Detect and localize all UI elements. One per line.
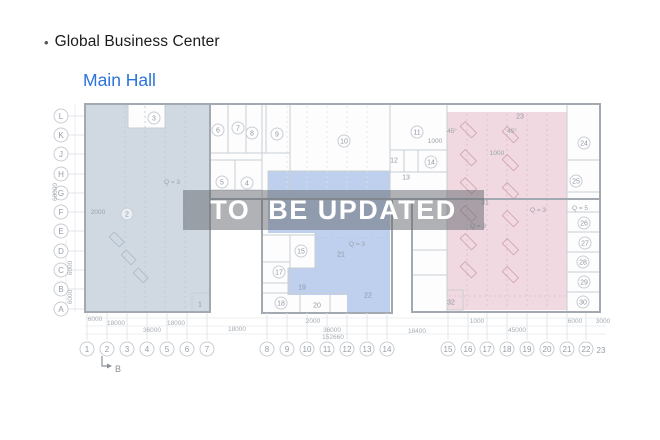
svg-text:18: 18 [503, 345, 512, 354]
svg-text:18400: 18400 [408, 328, 426, 335]
svg-text:E: E [58, 227, 63, 236]
svg-text:2: 2 [125, 211, 129, 218]
svg-text:2000: 2000 [91, 209, 106, 216]
svg-text:28: 28 [579, 259, 587, 266]
svg-text:C: C [58, 266, 64, 275]
svg-text:3: 3 [125, 345, 130, 354]
svg-text:2000: 2000 [306, 318, 321, 325]
row-axis-labels: LKJHGFEDCBA [54, 109, 84, 316]
svg-text:12: 12 [343, 345, 352, 354]
svg-text:2: 2 [105, 345, 110, 354]
svg-text:45000: 45000 [508, 327, 526, 334]
svg-text:21: 21 [337, 251, 345, 258]
svg-text:36000: 36000 [143, 327, 161, 334]
svg-text:12: 12 [390, 157, 398, 164]
svg-text:36000: 36000 [323, 327, 341, 334]
svg-text:32: 32 [447, 299, 455, 306]
svg-text:18000: 18000 [228, 326, 246, 333]
svg-text:Q = 3: Q = 3 [530, 207, 546, 214]
svg-text:6000: 6000 [568, 318, 583, 325]
svg-text:16: 16 [464, 345, 473, 354]
svg-text:24: 24 [580, 140, 588, 147]
svg-text:11: 11 [323, 345, 332, 354]
svg-text:10: 10 [340, 138, 348, 145]
svg-text:9: 9 [275, 131, 279, 138]
svg-text:21: 21 [563, 345, 572, 354]
svg-text:11: 11 [413, 129, 420, 136]
svg-text:23: 23 [597, 346, 606, 355]
svg-text:20: 20 [543, 345, 552, 354]
svg-text:6000: 6000 [67, 289, 74, 304]
svg-text:H: H [58, 170, 64, 179]
svg-text:29: 29 [580, 279, 588, 286]
svg-text:4: 4 [245, 180, 249, 187]
svg-text:14: 14 [383, 345, 392, 354]
svg-text:1: 1 [198, 301, 202, 308]
svg-text:L: L [59, 112, 64, 121]
svg-text:1000: 1000 [490, 150, 505, 157]
svg-text:3: 3 [152, 115, 156, 122]
svg-text:J: J [59, 150, 63, 159]
svg-text:Q = 5: Q = 5 [572, 205, 588, 212]
svg-text:9: 9 [285, 345, 290, 354]
svg-text:45°: 45° [447, 127, 457, 135]
svg-text:13: 13 [402, 174, 410, 181]
svg-text:6: 6 [216, 127, 220, 134]
svg-text:17: 17 [275, 269, 283, 276]
watermark-banner: TO BE UPDATED [183, 190, 484, 230]
svg-text:60000: 60000 [52, 183, 59, 201]
page: { "header": { "bullet": "•", "title": "G… [0, 0, 660, 440]
svg-text:13: 13 [363, 345, 372, 354]
svg-text:7: 7 [236, 125, 240, 132]
svg-text:6: 6 [185, 345, 190, 354]
svg-text:6000: 6000 [88, 316, 103, 323]
svg-text:3000: 3000 [596, 318, 611, 325]
svg-text:22: 22 [364, 292, 372, 299]
svg-text:1000: 1000 [470, 318, 485, 325]
svg-text:22: 22 [582, 345, 591, 354]
svg-text:152660: 152660 [322, 334, 344, 341]
svg-text:Q = 3: Q = 3 [349, 241, 365, 248]
svg-text:Q = 3: Q = 3 [164, 179, 180, 186]
svg-text:5: 5 [220, 179, 224, 186]
svg-text:A: A [58, 305, 64, 314]
svg-text:4: 4 [145, 345, 150, 354]
svg-text:19: 19 [298, 284, 306, 291]
svg-text:8: 8 [250, 130, 254, 137]
svg-text:45°: 45° [507, 127, 517, 135]
svg-text:18000: 18000 [167, 320, 185, 327]
svg-text:B: B [115, 364, 121, 374]
svg-text:25: 25 [572, 178, 580, 185]
svg-text:23: 23 [516, 113, 524, 120]
svg-text:10: 10 [303, 345, 312, 354]
svg-text:18: 18 [277, 300, 285, 307]
svg-text:D: D [58, 247, 64, 256]
svg-text:17: 17 [483, 345, 492, 354]
svg-text:F: F [59, 208, 64, 217]
svg-text:1000: 1000 [428, 138, 443, 145]
svg-text:19: 19 [523, 345, 532, 354]
svg-text:1: 1 [85, 345, 90, 354]
svg-text:5: 5 [165, 345, 170, 354]
svg-text:18000: 18000 [107, 320, 125, 327]
svg-text:6000: 6000 [67, 260, 74, 275]
svg-text:15: 15 [444, 345, 453, 354]
svg-text:B: B [58, 285, 63, 294]
svg-text:K: K [58, 131, 64, 140]
svg-text:14: 14 [427, 159, 435, 166]
section-marker-b: B [102, 356, 121, 374]
svg-text:27: 27 [581, 240, 589, 247]
svg-text:26: 26 [580, 220, 588, 227]
svg-text:7: 7 [205, 345, 210, 354]
svg-text:20: 20 [313, 302, 321, 309]
svg-text:8: 8 [265, 345, 270, 354]
svg-text:15: 15 [297, 248, 305, 255]
svg-text:30: 30 [579, 299, 587, 306]
